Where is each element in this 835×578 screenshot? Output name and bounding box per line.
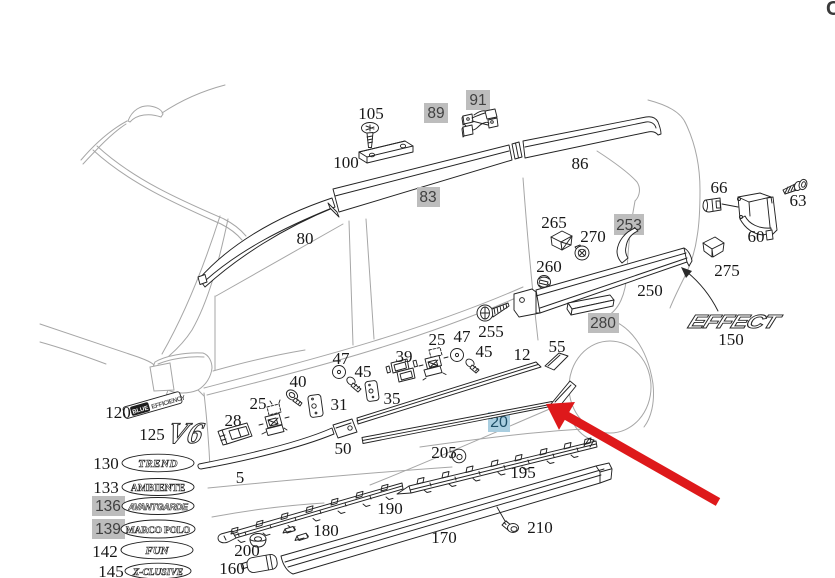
- svg-text:47: 47: [454, 327, 472, 346]
- svg-text:91: 91: [469, 92, 486, 109]
- svg-text:180: 180: [313, 521, 339, 540]
- svg-text:275: 275: [714, 261, 740, 280]
- svg-text:45: 45: [355, 362, 372, 381]
- svg-text:150: 150: [718, 330, 744, 349]
- svg-text:63: 63: [790, 191, 807, 210]
- svg-text:270: 270: [580, 227, 606, 246]
- svg-text:160: 160: [219, 559, 245, 578]
- svg-text:130: 130: [93, 454, 119, 473]
- svg-text:190: 190: [377, 499, 403, 518]
- svg-text:AMBIENTE: AMBIENTE: [131, 483, 186, 494]
- svg-text:25: 25: [250, 394, 267, 413]
- svg-text:C: C: [826, 0, 835, 20]
- svg-text:260: 260: [536, 257, 562, 276]
- svg-text:31: 31: [331, 395, 348, 414]
- svg-text:80: 80: [297, 229, 314, 248]
- svg-text:205: 205: [431, 443, 457, 462]
- svg-text:FUN: FUN: [144, 545, 169, 557]
- svg-text:133: 133: [93, 478, 119, 497]
- svg-text:210: 210: [527, 518, 553, 537]
- svg-text:25: 25: [429, 330, 446, 349]
- svg-text:139: 139: [95, 521, 121, 538]
- svg-text:55: 55: [549, 337, 566, 356]
- svg-text:120: 120: [105, 403, 131, 422]
- svg-text:83: 83: [419, 189, 436, 206]
- svg-text:255: 255: [478, 322, 504, 341]
- svg-text:265: 265: [541, 213, 567, 232]
- svg-text:47: 47: [333, 349, 351, 368]
- svg-text:5: 5: [236, 468, 245, 487]
- svg-text:45: 45: [476, 342, 493, 361]
- svg-text:89: 89: [427, 105, 444, 122]
- svg-text:12: 12: [514, 345, 531, 364]
- svg-text:100: 100: [333, 153, 359, 172]
- svg-text:125: 125: [139, 425, 165, 444]
- svg-text:39: 39: [396, 347, 413, 366]
- svg-text:145: 145: [98, 562, 124, 578]
- svg-text:AVANTGARDE: AVANTGARDE: [127, 502, 188, 512]
- svg-text:280: 280: [590, 315, 616, 332]
- svg-text:105: 105: [358, 104, 384, 123]
- svg-text:TREND: TREND: [138, 458, 178, 470]
- svg-text:86: 86: [572, 154, 589, 173]
- svg-text:MARCO POLO: MARCO POLO: [126, 526, 190, 536]
- svg-text:170: 170: [431, 528, 457, 547]
- svg-text:50: 50: [335, 439, 352, 458]
- svg-text:60: 60: [748, 227, 765, 246]
- svg-text:136: 136: [95, 498, 121, 515]
- svg-text:28: 28: [225, 411, 242, 430]
- svg-text:X-CLUSIVE: X-CLUSIVE: [132, 568, 183, 578]
- svg-text:40: 40: [290, 372, 307, 391]
- svg-text:142: 142: [92, 542, 118, 561]
- svg-text:66: 66: [711, 178, 728, 197]
- svg-text:195: 195: [510, 463, 536, 482]
- svg-text:250: 250: [637, 281, 663, 300]
